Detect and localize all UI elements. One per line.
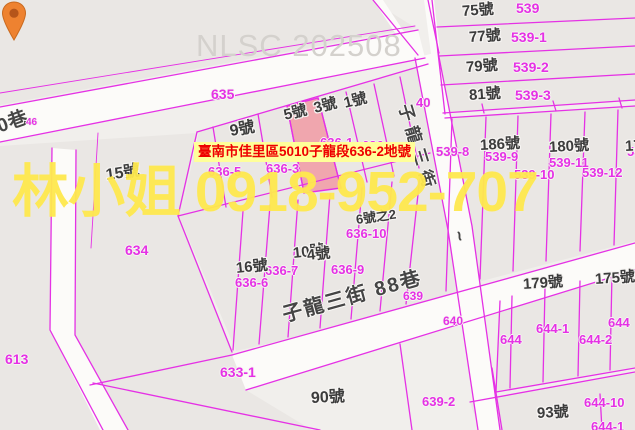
parcel-number-539: 539: [516, 1, 539, 15]
house-number-179號: 179號: [522, 274, 563, 292]
house-number-77號: 77號: [468, 28, 501, 45]
location-pin-icon[interactable]: [0, 0, 28, 44]
parcel-number-639: 639: [403, 290, 423, 302]
parcel-number-46: 46: [26, 118, 37, 128]
parcel-number-636-6: 636-6: [235, 276, 268, 289]
house-number-180號: 180號: [549, 138, 590, 155]
house-number-186號: 186號: [480, 136, 521, 153]
house-number-79號: 79號: [465, 58, 498, 75]
parcel-number-644-10: 644-10: [584, 396, 624, 409]
house-number-75號: 75號: [461, 2, 494, 19]
parcel-tooltip: 臺南市佳里區5010子龍段636-2地號: [194, 142, 415, 162]
parcel-number-636-7: 636-7: [265, 264, 298, 277]
parcel-number-640: 640: [443, 315, 463, 327]
parcel-number-40: 40: [416, 96, 430, 109]
parcel-number-539-3: 539-3: [515, 88, 551, 102]
parcel-number-539-2: 539-2: [513, 60, 549, 74]
parcel-number-539-12: 539-12: [582, 166, 622, 179]
house-number-17: 17: [625, 138, 635, 154]
parcel-number-636-10: 636-10: [346, 227, 386, 240]
parcel-number-539-1: 539-1: [511, 30, 547, 44]
cadastral-map-canvas[interactable]: NLSC 202508 子龍三街~子龍三街 88巷0巷 46635539539-…: [0, 0, 635, 430]
parcel-number-634: 634: [125, 243, 148, 257]
nlsc-watermark: NLSC 202508: [196, 28, 402, 64]
house-number-81號: 81號: [468, 86, 501, 103]
parcel-number-639-2: 639-2: [422, 395, 455, 408]
parcel-number-539-8: 539-8: [436, 145, 469, 158]
parcel-number-644: 644: [500, 333, 522, 346]
parcel-number-635: 635: [211, 87, 234, 101]
parcel-number-613: 613: [5, 352, 28, 366]
parcel-number-633-1: 633-1: [220, 365, 256, 379]
house-number-4號: 4號: [306, 246, 331, 263]
agent-contact-watermark: 林小姐 0918-952-707: [12, 164, 538, 221]
house-number-90號: 90號: [311, 389, 346, 407]
house-number-16號: 16號: [235, 258, 268, 276]
parcel-number-644-1: 644-1: [536, 322, 569, 335]
parcel-number-644-2: 644-2: [579, 333, 612, 346]
parcel-number-636-9: 636-9: [331, 263, 364, 276]
house-number-175號: 175號: [594, 269, 635, 287]
parcel-number-644-1: 644-1: [591, 420, 624, 430]
parcel-number-644: 644: [608, 316, 630, 329]
house-number-93號: 93號: [537, 404, 569, 421]
